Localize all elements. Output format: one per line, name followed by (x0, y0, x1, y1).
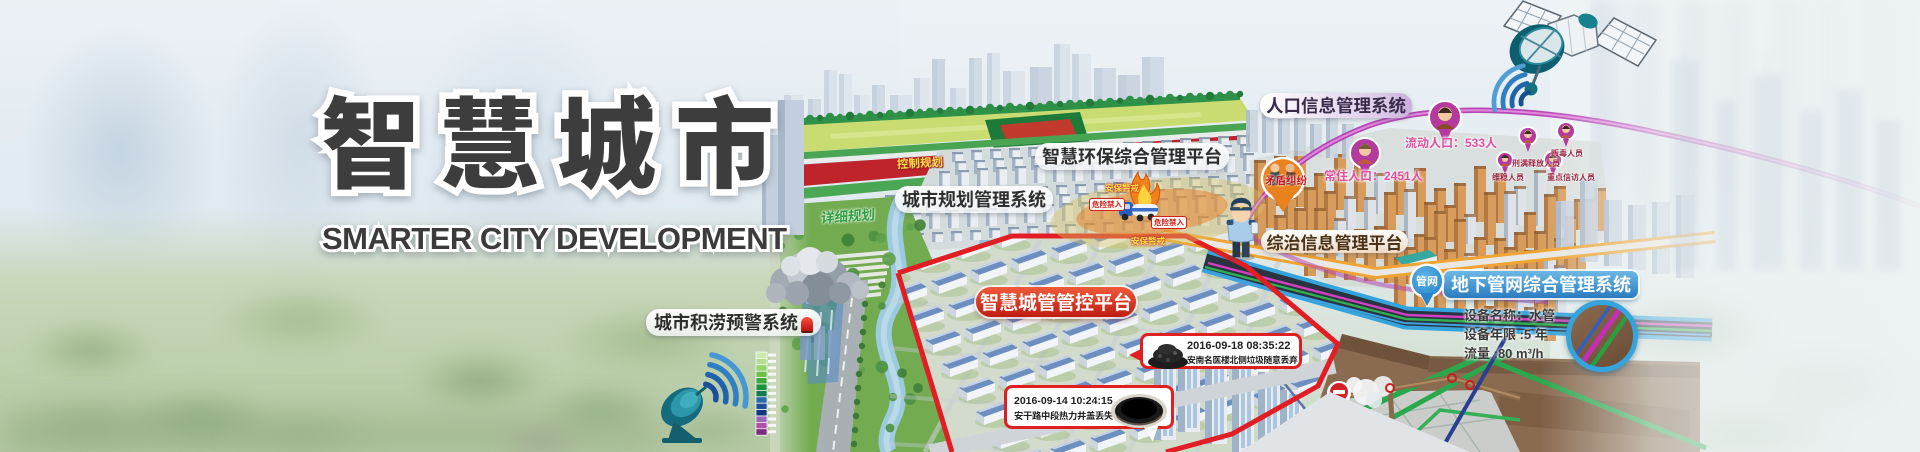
svg-text:智慧城市: 智慧城市 (321, 65, 793, 209)
svg-text:SMARTER CITY DEVELOPMENT: SMARTER CITY DEVELOPMENT (322, 221, 787, 256)
